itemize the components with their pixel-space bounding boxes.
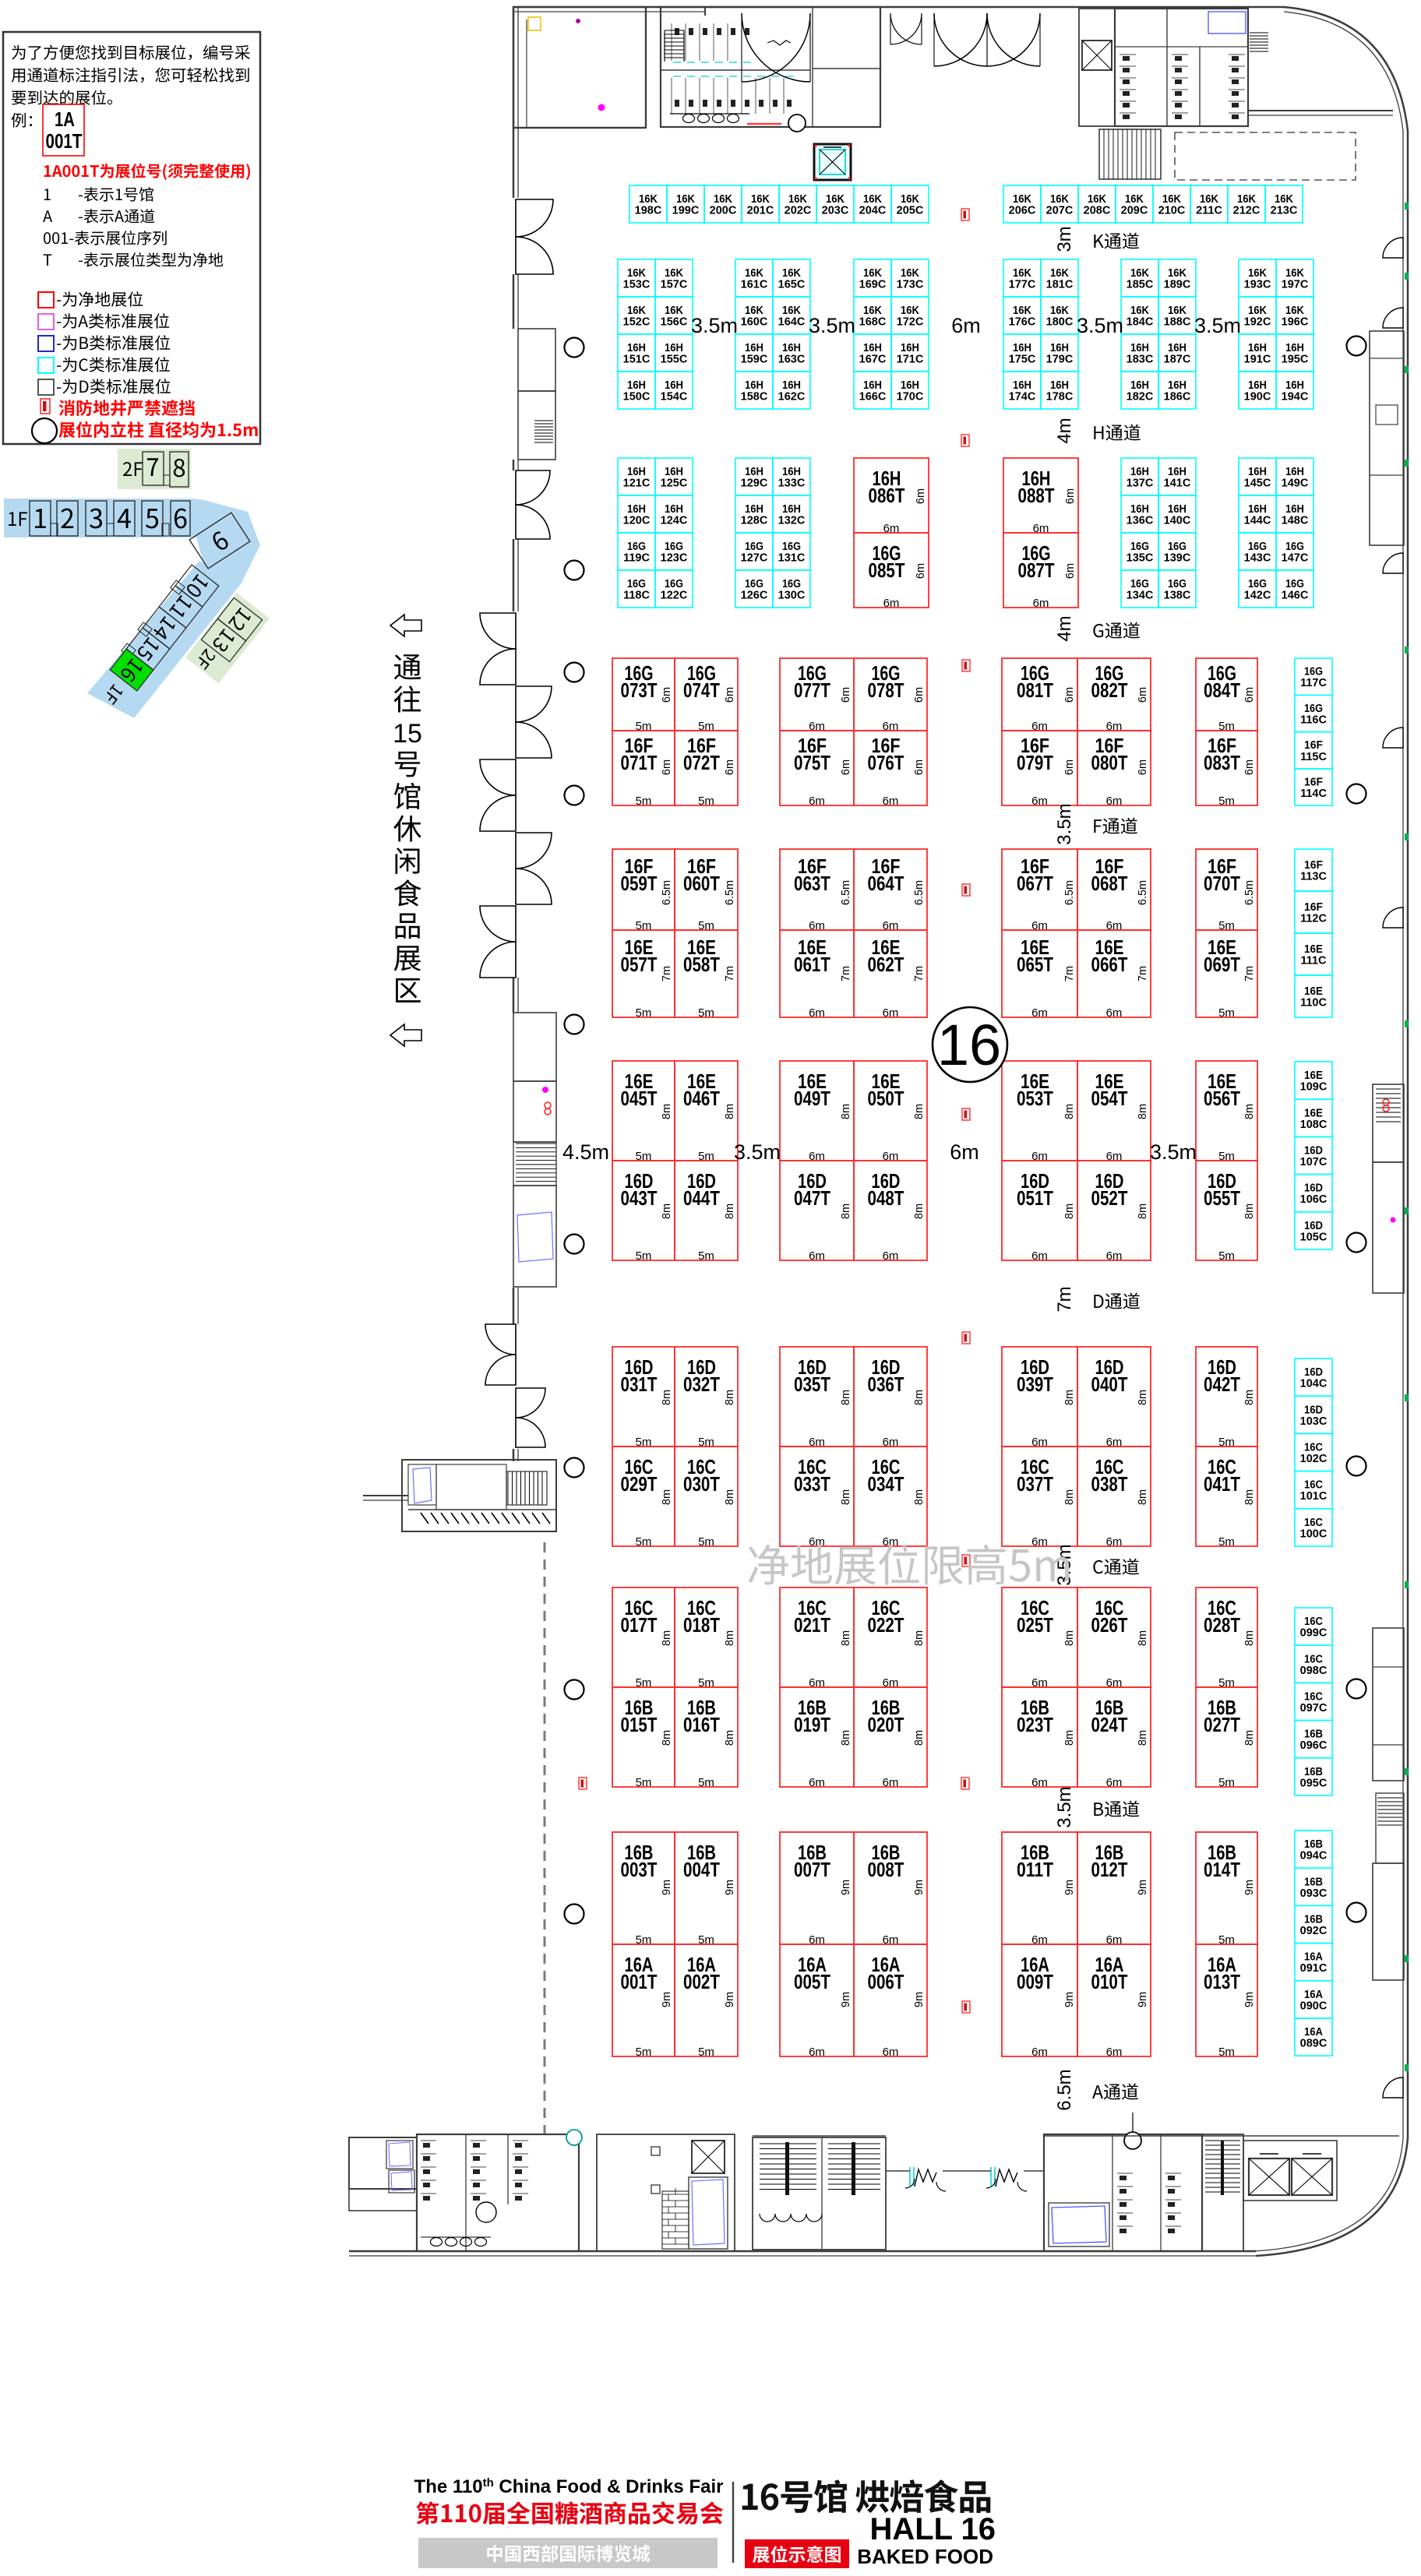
svg-text:115C: 115C bbox=[1300, 751, 1327, 763]
svg-text:8m: 8m bbox=[1243, 1104, 1256, 1119]
svg-text:141C: 141C bbox=[1164, 477, 1191, 490]
svg-text:056T: 056T bbox=[1204, 1087, 1240, 1110]
svg-text:145C: 145C bbox=[1244, 477, 1271, 490]
svg-text:7m: 7m bbox=[840, 966, 852, 981]
svg-text:6.5m: 6.5m bbox=[1243, 880, 1256, 905]
svg-text:022T: 022T bbox=[868, 1613, 904, 1637]
svg-text:003T: 003T bbox=[621, 1858, 658, 1881]
svg-text:8m: 8m bbox=[913, 1390, 926, 1405]
svg-text:085T: 085T bbox=[869, 559, 905, 582]
svg-text:077T: 077T bbox=[794, 678, 830, 702]
svg-text:108C: 108C bbox=[1300, 1119, 1328, 1131]
svg-text:008T: 008T bbox=[868, 1858, 904, 1881]
svg-text:6m: 6m bbox=[1063, 687, 1076, 703]
svg-text:9m: 9m bbox=[913, 1880, 926, 1895]
svg-text:168C: 168C bbox=[859, 316, 887, 329]
svg-text:112C: 112C bbox=[1300, 913, 1327, 925]
svg-text:6m: 6m bbox=[1063, 759, 1076, 775]
svg-text:3.5m: 3.5m bbox=[1054, 803, 1075, 844]
svg-text:8m: 8m bbox=[1243, 1630, 1256, 1646]
svg-text:206C: 206C bbox=[1009, 205, 1036, 217]
svg-text:026T: 026T bbox=[1091, 1613, 1128, 1637]
svg-text:8m: 8m bbox=[840, 1730, 852, 1746]
svg-text:6m: 6m bbox=[809, 1535, 825, 1549]
svg-text:193C: 193C bbox=[1244, 279, 1271, 291]
svg-text:058T: 058T bbox=[683, 953, 720, 976]
svg-text:073T: 073T bbox=[621, 678, 658, 702]
svg-text:035T: 035T bbox=[794, 1373, 830, 1396]
svg-text:7m: 7m bbox=[661, 966, 673, 981]
svg-text:046T: 046T bbox=[683, 1087, 720, 1110]
svg-text:173C: 173C bbox=[897, 279, 924, 291]
svg-text:189C: 189C bbox=[1164, 279, 1191, 291]
svg-text:165C: 165C bbox=[778, 279, 806, 291]
svg-text:074T: 074T bbox=[683, 678, 720, 702]
svg-text:207C: 207C bbox=[1046, 205, 1074, 217]
svg-text:081T: 081T bbox=[1017, 678, 1053, 702]
svg-text:157C: 157C bbox=[661, 279, 688, 291]
svg-text:15: 15 bbox=[393, 719, 422, 749]
svg-text:054T: 054T bbox=[1091, 1087, 1128, 1110]
svg-text:9m: 9m bbox=[724, 1880, 736, 1895]
svg-text:8m: 8m bbox=[1243, 1730, 1256, 1746]
svg-text:091C: 091C bbox=[1300, 1962, 1328, 1975]
svg-text:6m: 6m bbox=[1137, 759, 1149, 775]
svg-text:178C: 178C bbox=[1046, 391, 1074, 403]
svg-text:016T: 016T bbox=[683, 1713, 720, 1736]
svg-text:7m: 7m bbox=[1054, 1286, 1075, 1312]
svg-text:179C: 179C bbox=[1046, 354, 1074, 366]
svg-text:3.5m: 3.5m bbox=[1054, 1544, 1075, 1585]
svg-text:096C: 096C bbox=[1300, 1739, 1328, 1752]
svg-text:053T: 053T bbox=[1017, 1087, 1053, 1110]
svg-text:6m: 6m bbox=[1106, 1776, 1123, 1789]
svg-text:210C: 210C bbox=[1158, 205, 1186, 217]
svg-text:067T: 067T bbox=[1017, 872, 1053, 895]
svg-text:097C: 097C bbox=[1300, 1702, 1328, 1714]
svg-text:3.5m: 3.5m bbox=[734, 1140, 781, 1164]
svg-text:005T: 005T bbox=[794, 1970, 830, 1993]
svg-text:6m: 6m bbox=[809, 1249, 825, 1263]
svg-text:087T: 087T bbox=[1018, 559, 1055, 582]
svg-text:8m: 8m bbox=[840, 1630, 852, 1646]
svg-text:BAKED FOOD: BAKED FOOD bbox=[857, 2545, 993, 2568]
svg-text:5m: 5m bbox=[1218, 1776, 1235, 1789]
svg-text:7m: 7m bbox=[1063, 966, 1076, 981]
svg-text:135C: 135C bbox=[1127, 552, 1154, 565]
svg-text:6.5m: 6.5m bbox=[1063, 880, 1076, 905]
svg-text:6m: 6m bbox=[913, 687, 926, 703]
svg-text:8m: 8m bbox=[1063, 1390, 1076, 1405]
svg-text:180C: 180C bbox=[1046, 316, 1074, 329]
svg-text:024T: 024T bbox=[1091, 1713, 1128, 1736]
svg-text:048T: 048T bbox=[868, 1186, 904, 1210]
svg-text:8m: 8m bbox=[724, 1203, 736, 1219]
svg-text:156C: 156C bbox=[661, 316, 688, 329]
svg-text:8m: 8m bbox=[1137, 1203, 1149, 1219]
svg-text:6.5m: 6.5m bbox=[913, 880, 926, 905]
svg-text:057T: 057T bbox=[621, 953, 658, 976]
svg-text:111C: 111C bbox=[1300, 955, 1327, 967]
svg-text:006T: 006T bbox=[868, 1970, 904, 1993]
svg-text:5m: 5m bbox=[1218, 2046, 1235, 2059]
svg-text:8m: 8m bbox=[840, 1489, 852, 1505]
svg-text:9m: 9m bbox=[1137, 1992, 1149, 2007]
svg-text:6m: 6m bbox=[1243, 687, 1256, 703]
svg-text:9m: 9m bbox=[1063, 1880, 1076, 1895]
svg-text:5m: 5m bbox=[698, 1776, 714, 1789]
svg-text:136C: 136C bbox=[1127, 515, 1154, 527]
svg-text:6m: 6m bbox=[1031, 1249, 1048, 1263]
svg-text:120C: 120C bbox=[623, 515, 651, 527]
svg-text:116C: 116C bbox=[1300, 714, 1327, 726]
svg-text:149C: 149C bbox=[1282, 477, 1309, 490]
svg-text:8m: 8m bbox=[1063, 1203, 1076, 1219]
svg-text:6m: 6m bbox=[809, 2046, 825, 2059]
svg-text:047T: 047T bbox=[794, 1186, 830, 1210]
svg-text:118C: 118C bbox=[623, 590, 650, 602]
svg-text:203C: 203C bbox=[822, 205, 849, 217]
svg-text:6m: 6m bbox=[1106, 1535, 1123, 1549]
svg-text:174C: 174C bbox=[1009, 391, 1036, 403]
svg-text:195C: 195C bbox=[1282, 354, 1309, 366]
svg-text:6m: 6m bbox=[1106, 795, 1123, 808]
svg-text:099C: 099C bbox=[1300, 1627, 1328, 1640]
svg-text:036T: 036T bbox=[868, 1373, 904, 1396]
svg-text:5m: 5m bbox=[698, 2046, 714, 2059]
svg-text:6m: 6m bbox=[1031, 795, 1048, 808]
svg-text:5m: 5m bbox=[698, 1249, 714, 1263]
svg-text:6m: 6m bbox=[724, 759, 736, 775]
svg-text:172C: 172C bbox=[897, 316, 924, 329]
svg-text:8m: 8m bbox=[913, 1489, 926, 1505]
svg-text:066T: 066T bbox=[1091, 953, 1128, 976]
svg-text:176C: 176C bbox=[1009, 316, 1036, 329]
svg-text:065T: 065T bbox=[1017, 953, 1053, 976]
svg-text:127C: 127C bbox=[741, 552, 768, 565]
svg-text:109C: 109C bbox=[1300, 1081, 1328, 1094]
svg-text:128C: 128C bbox=[741, 515, 768, 527]
svg-text:169C: 169C bbox=[859, 279, 887, 291]
svg-text:148C: 148C bbox=[1282, 515, 1309, 527]
svg-text:010T: 010T bbox=[1091, 1970, 1128, 1993]
svg-text:6m: 6m bbox=[1106, 1249, 1123, 1263]
svg-text:146C: 146C bbox=[1282, 590, 1309, 602]
svg-text:121C: 121C bbox=[623, 477, 651, 490]
svg-text:124C: 124C bbox=[661, 515, 688, 527]
svg-text:004T: 004T bbox=[683, 1858, 720, 1881]
svg-text:6m: 6m bbox=[950, 1140, 979, 1164]
svg-text:105C: 105C bbox=[1300, 1231, 1328, 1243]
svg-text:181C: 181C bbox=[1046, 279, 1074, 291]
svg-text:086T: 086T bbox=[869, 484, 905, 507]
svg-text:088T: 088T bbox=[1018, 484, 1055, 507]
svg-text:8m: 8m bbox=[1243, 1489, 1256, 1505]
svg-text:090C: 090C bbox=[1300, 2000, 1328, 2012]
svg-text:9m: 9m bbox=[1063, 1992, 1076, 2007]
svg-text:100C: 100C bbox=[1300, 1528, 1328, 1540]
svg-text:196C: 196C bbox=[1282, 316, 1309, 329]
svg-text:102C: 102C bbox=[1300, 1453, 1328, 1465]
svg-text:6m: 6m bbox=[951, 314, 981, 337]
svg-text:3.5m: 3.5m bbox=[1077, 314, 1123, 337]
svg-text:101C: 101C bbox=[1300, 1490, 1328, 1503]
svg-text:059T: 059T bbox=[621, 872, 658, 895]
svg-text:018T: 018T bbox=[683, 1613, 720, 1637]
svg-text:201C: 201C bbox=[747, 205, 774, 217]
svg-text:6m: 6m bbox=[809, 1006, 825, 1020]
svg-text:032T: 032T bbox=[683, 1373, 720, 1396]
svg-text:4m: 4m bbox=[1054, 418, 1075, 443]
svg-text:080T: 080T bbox=[1091, 751, 1128, 774]
svg-text:182C: 182C bbox=[1127, 391, 1154, 403]
svg-text:9m: 9m bbox=[1243, 1880, 1256, 1895]
svg-text:9m: 9m bbox=[840, 1880, 852, 1895]
svg-text:5m: 5m bbox=[636, 1249, 652, 1263]
svg-text:191C: 191C bbox=[1244, 354, 1271, 366]
svg-text:133C: 133C bbox=[778, 477, 806, 490]
svg-text:6m: 6m bbox=[1031, 2046, 1048, 2059]
svg-text:8m: 8m bbox=[913, 1730, 926, 1746]
svg-text:8m: 8m bbox=[840, 1104, 852, 1119]
svg-text:084T: 084T bbox=[1204, 678, 1240, 702]
svg-text:061T: 061T bbox=[794, 953, 830, 976]
svg-text:137C: 137C bbox=[1127, 477, 1154, 490]
svg-text:3m: 3m bbox=[1054, 226, 1075, 252]
svg-text:205C: 205C bbox=[897, 205, 924, 217]
svg-text:072T: 072T bbox=[683, 751, 720, 774]
svg-text:3.5m: 3.5m bbox=[809, 314, 855, 337]
svg-text:6m: 6m bbox=[1064, 563, 1077, 579]
svg-text:213C: 213C bbox=[1271, 205, 1298, 217]
svg-text:6m: 6m bbox=[809, 795, 825, 808]
svg-text:6m: 6m bbox=[883, 1776, 899, 1789]
svg-text:041T: 041T bbox=[1204, 1472, 1240, 1496]
svg-text:192C: 192C bbox=[1244, 316, 1271, 329]
svg-text:8m: 8m bbox=[1137, 1489, 1149, 1505]
svg-text:126C: 126C bbox=[741, 590, 768, 602]
svg-text:030T: 030T bbox=[683, 1472, 720, 1496]
svg-text:8m: 8m bbox=[1243, 1390, 1256, 1405]
svg-text:9m: 9m bbox=[1243, 1992, 1256, 2007]
svg-text:208C: 208C bbox=[1084, 205, 1111, 217]
svg-text:6m: 6m bbox=[840, 759, 852, 775]
svg-text:197C: 197C bbox=[1282, 279, 1309, 291]
svg-text:9m: 9m bbox=[661, 1992, 673, 2007]
svg-text:8m: 8m bbox=[724, 1489, 736, 1505]
svg-text:164C: 164C bbox=[778, 316, 806, 329]
svg-text:117C: 117C bbox=[1300, 677, 1327, 689]
svg-text:147C: 147C bbox=[1282, 552, 1309, 565]
svg-text:199C: 199C bbox=[672, 205, 700, 217]
svg-text:025T: 025T bbox=[1017, 1613, 1053, 1637]
svg-text:6m: 6m bbox=[883, 2046, 899, 2059]
svg-text:6m: 6m bbox=[1033, 597, 1049, 610]
svg-text:9m: 9m bbox=[913, 1992, 926, 2007]
svg-text:140C: 140C bbox=[1164, 515, 1191, 527]
svg-text:8m: 8m bbox=[913, 1104, 926, 1119]
svg-text:002T: 002T bbox=[683, 1970, 720, 1993]
svg-text:16: 16 bbox=[937, 1013, 1001, 1077]
svg-text:064T: 064T bbox=[868, 872, 904, 895]
svg-text:039T: 039T bbox=[1017, 1373, 1053, 1396]
svg-text:050T: 050T bbox=[868, 1087, 904, 1110]
svg-text:110C: 110C bbox=[1300, 997, 1327, 1010]
svg-text:161C: 161C bbox=[741, 279, 768, 291]
svg-text:5m: 5m bbox=[1218, 1249, 1235, 1263]
svg-text:8m: 8m bbox=[661, 1203, 673, 1219]
svg-text:031T: 031T bbox=[621, 1373, 658, 1396]
svg-text:089C: 089C bbox=[1300, 2038, 1328, 2050]
svg-text:160C: 160C bbox=[741, 316, 768, 329]
svg-text:202C: 202C bbox=[785, 205, 812, 217]
svg-text:104C: 104C bbox=[1300, 1378, 1328, 1390]
svg-text:3.5m: 3.5m bbox=[1054, 1786, 1075, 1827]
svg-text:6m: 6m bbox=[915, 488, 927, 504]
svg-text:001T: 001T bbox=[46, 129, 83, 153]
svg-text:045T: 045T bbox=[621, 1087, 658, 1110]
svg-text:209C: 209C bbox=[1121, 205, 1148, 217]
svg-text:076T: 076T bbox=[868, 751, 904, 774]
svg-text:011T: 011T bbox=[1017, 1858, 1053, 1881]
svg-text:027T: 027T bbox=[1204, 1713, 1240, 1736]
svg-text:6m: 6m bbox=[883, 795, 899, 808]
svg-text:212C: 212C bbox=[1233, 205, 1261, 217]
svg-text:6m: 6m bbox=[809, 1776, 825, 1789]
svg-text:5m: 5m bbox=[1218, 1535, 1235, 1549]
svg-text:166C: 166C bbox=[859, 391, 887, 403]
svg-text:4.5m: 4.5m bbox=[562, 1140, 609, 1164]
svg-text:019T: 019T bbox=[794, 1713, 830, 1736]
svg-text:130C: 130C bbox=[778, 590, 806, 602]
svg-text:9m: 9m bbox=[1137, 1880, 1149, 1895]
svg-text:015T: 015T bbox=[621, 1713, 658, 1736]
svg-text:6m: 6m bbox=[1031, 1776, 1048, 1789]
svg-text:8m: 8m bbox=[1137, 1104, 1149, 1119]
svg-text:020T: 020T bbox=[868, 1713, 904, 1736]
svg-text:6m: 6m bbox=[661, 759, 673, 775]
svg-text:106C: 106C bbox=[1300, 1193, 1328, 1206]
svg-text:093C: 093C bbox=[1300, 1887, 1328, 1900]
svg-text:063T: 063T bbox=[794, 872, 830, 895]
svg-text:8m: 8m bbox=[840, 1203, 852, 1219]
svg-text:014T: 014T bbox=[1204, 1858, 1240, 1881]
svg-text:042T: 042T bbox=[1204, 1373, 1240, 1396]
svg-text:8m: 8m bbox=[1063, 1730, 1076, 1746]
svg-text:125C: 125C bbox=[661, 477, 688, 490]
svg-text:204C: 204C bbox=[859, 205, 887, 217]
svg-text:139C: 139C bbox=[1164, 552, 1191, 565]
svg-text:131C: 131C bbox=[778, 552, 806, 565]
svg-text:069T: 069T bbox=[1204, 953, 1240, 976]
svg-text:6m: 6m bbox=[1031, 1535, 1048, 1549]
svg-text:8m: 8m bbox=[724, 1104, 736, 1119]
svg-text:9m: 9m bbox=[661, 1880, 673, 1895]
svg-text:The 110th China Food & Drinks: The 110th China Food & Drinks Fair bbox=[414, 2476, 724, 2498]
svg-text:5m: 5m bbox=[636, 795, 652, 808]
svg-text:8m: 8m bbox=[1063, 1104, 1076, 1119]
svg-text:023T: 023T bbox=[1017, 1713, 1053, 1736]
svg-text:211C: 211C bbox=[1196, 205, 1222, 217]
svg-text:078T: 078T bbox=[868, 678, 904, 702]
svg-text:075T: 075T bbox=[794, 751, 830, 774]
svg-text:055T: 055T bbox=[1204, 1186, 1240, 1210]
svg-text:175C: 175C bbox=[1009, 354, 1036, 366]
svg-text:3.5m: 3.5m bbox=[1150, 1140, 1197, 1164]
svg-text:184C: 184C bbox=[1127, 316, 1154, 329]
svg-text:062T: 062T bbox=[868, 953, 904, 976]
svg-text:6m: 6m bbox=[883, 597, 900, 610]
svg-text:6m: 6m bbox=[1064, 488, 1077, 504]
svg-text:138C: 138C bbox=[1164, 590, 1191, 602]
svg-text:7m: 7m bbox=[1137, 966, 1149, 981]
svg-text:6m: 6m bbox=[1106, 1006, 1123, 1020]
svg-text:198C: 198C bbox=[635, 205, 662, 217]
svg-text:113C: 113C bbox=[1300, 871, 1327, 883]
svg-text:009T: 009T bbox=[1017, 1970, 1053, 1993]
svg-text:049T: 049T bbox=[794, 1087, 830, 1110]
svg-text:134C: 134C bbox=[1127, 590, 1154, 602]
svg-text:122C: 122C bbox=[661, 590, 688, 602]
svg-text:8m: 8m bbox=[913, 1203, 926, 1219]
svg-text:1A: 1A bbox=[55, 107, 75, 131]
svg-text:051T: 051T bbox=[1017, 1186, 1053, 1210]
svg-text:155C: 155C bbox=[661, 354, 688, 366]
svg-text:034T: 034T bbox=[868, 1472, 904, 1496]
svg-text:021T: 021T bbox=[794, 1613, 830, 1637]
svg-text:167C: 167C bbox=[859, 354, 887, 366]
svg-text:6m: 6m bbox=[840, 687, 852, 703]
svg-text:170C: 170C bbox=[897, 391, 924, 403]
svg-text:154C: 154C bbox=[661, 391, 688, 403]
svg-text:6m: 6m bbox=[661, 687, 673, 703]
svg-text:3.5m: 3.5m bbox=[1194, 314, 1241, 337]
svg-text:079T: 079T bbox=[1017, 751, 1053, 774]
svg-text:012T: 012T bbox=[1091, 1858, 1128, 1881]
svg-text:5m: 5m bbox=[1218, 795, 1235, 808]
svg-text:8m: 8m bbox=[724, 1730, 736, 1746]
svg-text:028T: 028T bbox=[1204, 1613, 1240, 1637]
svg-text:8m: 8m bbox=[840, 1390, 852, 1405]
svg-text:163C: 163C bbox=[778, 354, 806, 366]
svg-text:8m: 8m bbox=[1063, 1630, 1076, 1646]
svg-text:132C: 132C bbox=[778, 515, 806, 527]
svg-text:6m: 6m bbox=[1137, 687, 1149, 703]
svg-text:8m: 8m bbox=[1243, 1203, 1256, 1219]
svg-text:158C: 158C bbox=[741, 391, 768, 403]
svg-text:029T: 029T bbox=[621, 1472, 658, 1496]
svg-text:038T: 038T bbox=[1091, 1472, 1128, 1496]
svg-text:159C: 159C bbox=[741, 354, 768, 366]
svg-text:129C: 129C bbox=[741, 477, 768, 490]
svg-text:6m: 6m bbox=[1243, 759, 1256, 775]
svg-text:5m: 5m bbox=[698, 1535, 714, 1549]
svg-text:6.5m: 6.5m bbox=[1137, 880, 1149, 905]
svg-text:6m: 6m bbox=[913, 759, 926, 775]
svg-text:5m: 5m bbox=[1218, 1006, 1235, 1020]
svg-text:107C: 107C bbox=[1300, 1156, 1328, 1168]
svg-text:8m: 8m bbox=[1137, 1630, 1149, 1646]
svg-text:200C: 200C bbox=[710, 205, 737, 217]
svg-text:092C: 092C bbox=[1300, 1925, 1328, 1937]
svg-text:8m: 8m bbox=[661, 1730, 673, 1746]
svg-text:6.5m: 6.5m bbox=[661, 880, 673, 905]
svg-text:5m: 5m bbox=[636, 1776, 652, 1789]
svg-text:8m: 8m bbox=[661, 1489, 673, 1505]
svg-text:070T: 070T bbox=[1204, 872, 1240, 895]
svg-text:HALL 16: HALL 16 bbox=[869, 2512, 996, 2546]
svg-text:3.5m: 3.5m bbox=[691, 314, 738, 337]
